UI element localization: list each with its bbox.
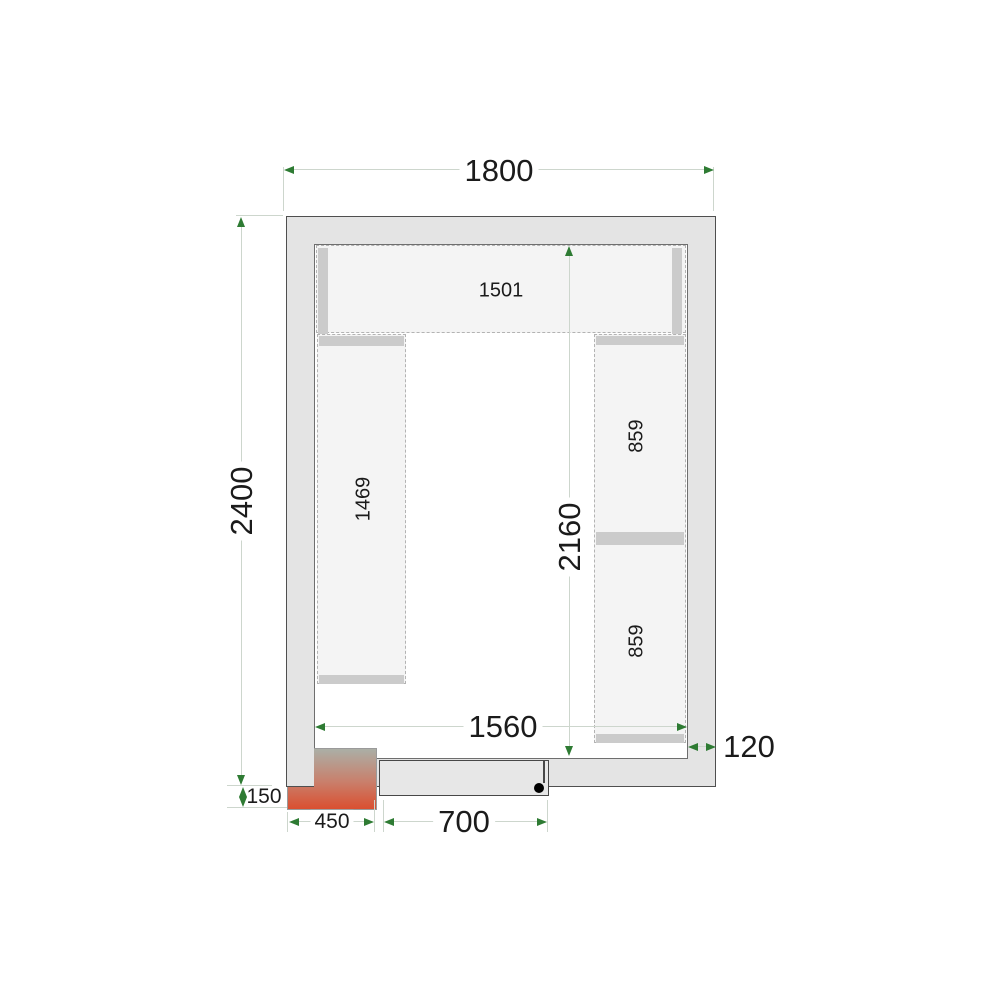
shelf-right-support-top-icon xyxy=(596,336,684,345)
dim-outer-depth-ext-top xyxy=(236,215,283,216)
dim-outer-depth-arrow-bottom-icon xyxy=(237,775,245,785)
dim-outer-width-label: 1800 xyxy=(460,153,539,189)
dim-outer-depth-arrow-top-icon xyxy=(237,217,245,227)
dim-outer-width-arrow-left-icon xyxy=(284,166,294,174)
dim-unit-width-ext-right xyxy=(374,800,375,832)
shelf-top-support-left-icon xyxy=(318,248,328,336)
door-leaf xyxy=(379,760,549,796)
dim-outer-depth-label: 2400 xyxy=(224,462,260,541)
shelf-left-label: 1469 xyxy=(353,477,376,522)
dim-door-width-arrow-right-icon xyxy=(537,818,547,826)
dim-door-width-label: 700 xyxy=(433,804,495,840)
floor-plan-canvas: 1501 1469 859 859 1800 2400 2160 1560 12… xyxy=(0,0,1000,1000)
shelf-right-support-bottom-icon xyxy=(596,734,684,743)
dim-wall-thickness-arrow-left-icon xyxy=(688,743,698,751)
wall-corner-overlap xyxy=(286,748,314,787)
shelf-left-support-bottom-icon xyxy=(319,675,404,684)
dim-outer-width-arrow-right-icon xyxy=(704,166,714,174)
dim-door-width-arrow-left-icon xyxy=(384,818,394,826)
shelf-right-upper-label: 859 xyxy=(626,419,649,452)
dim-inner-width-arrow-right-icon xyxy=(677,723,687,731)
door-jamb-line xyxy=(543,761,545,783)
dim-inner-depth-arrow-top-icon xyxy=(565,246,573,256)
dim-outer-width-ext-left xyxy=(283,167,284,211)
shelf-top-label: 1501 xyxy=(479,280,524,303)
dim-inner-width-label: 1560 xyxy=(464,709,543,745)
dim-inner-depth-arrow-bottom-icon xyxy=(565,746,573,756)
dim-wall-thickness-label: 120 xyxy=(718,729,780,765)
shelf-top-support-right-icon xyxy=(672,248,682,336)
shelf-left-support-top-icon xyxy=(319,336,404,346)
dim-inner-width-arrow-left-icon xyxy=(315,723,325,731)
dim-inner-depth-label: 2160 xyxy=(552,498,588,577)
dim-unit-width-arrow-left-icon xyxy=(289,818,299,826)
dim-unit-offset-label: 150 xyxy=(242,785,285,809)
dim-door-width-ext-right xyxy=(547,800,548,832)
dim-unit-width-arrow-right-icon xyxy=(364,818,374,826)
dim-unit-width-ext-left xyxy=(287,812,288,832)
dim-door-width-ext-left xyxy=(383,800,384,832)
door-pivot-dot xyxy=(534,783,544,793)
shelf-right-lower-label: 859 xyxy=(626,624,649,657)
dim-wall-thickness-arrow-right-icon xyxy=(706,743,716,751)
dim-unit-width-label: 450 xyxy=(310,810,353,834)
dim-outer-width-ext-right xyxy=(713,167,714,211)
shelf-right-support-middle-icon xyxy=(596,532,684,545)
